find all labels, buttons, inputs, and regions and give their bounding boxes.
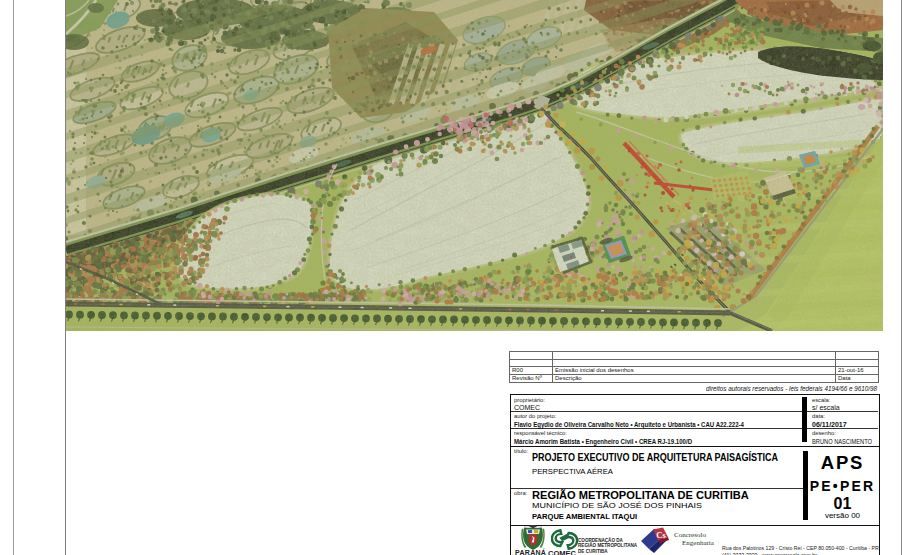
svg-text:Cs: Cs [656, 530, 666, 540]
